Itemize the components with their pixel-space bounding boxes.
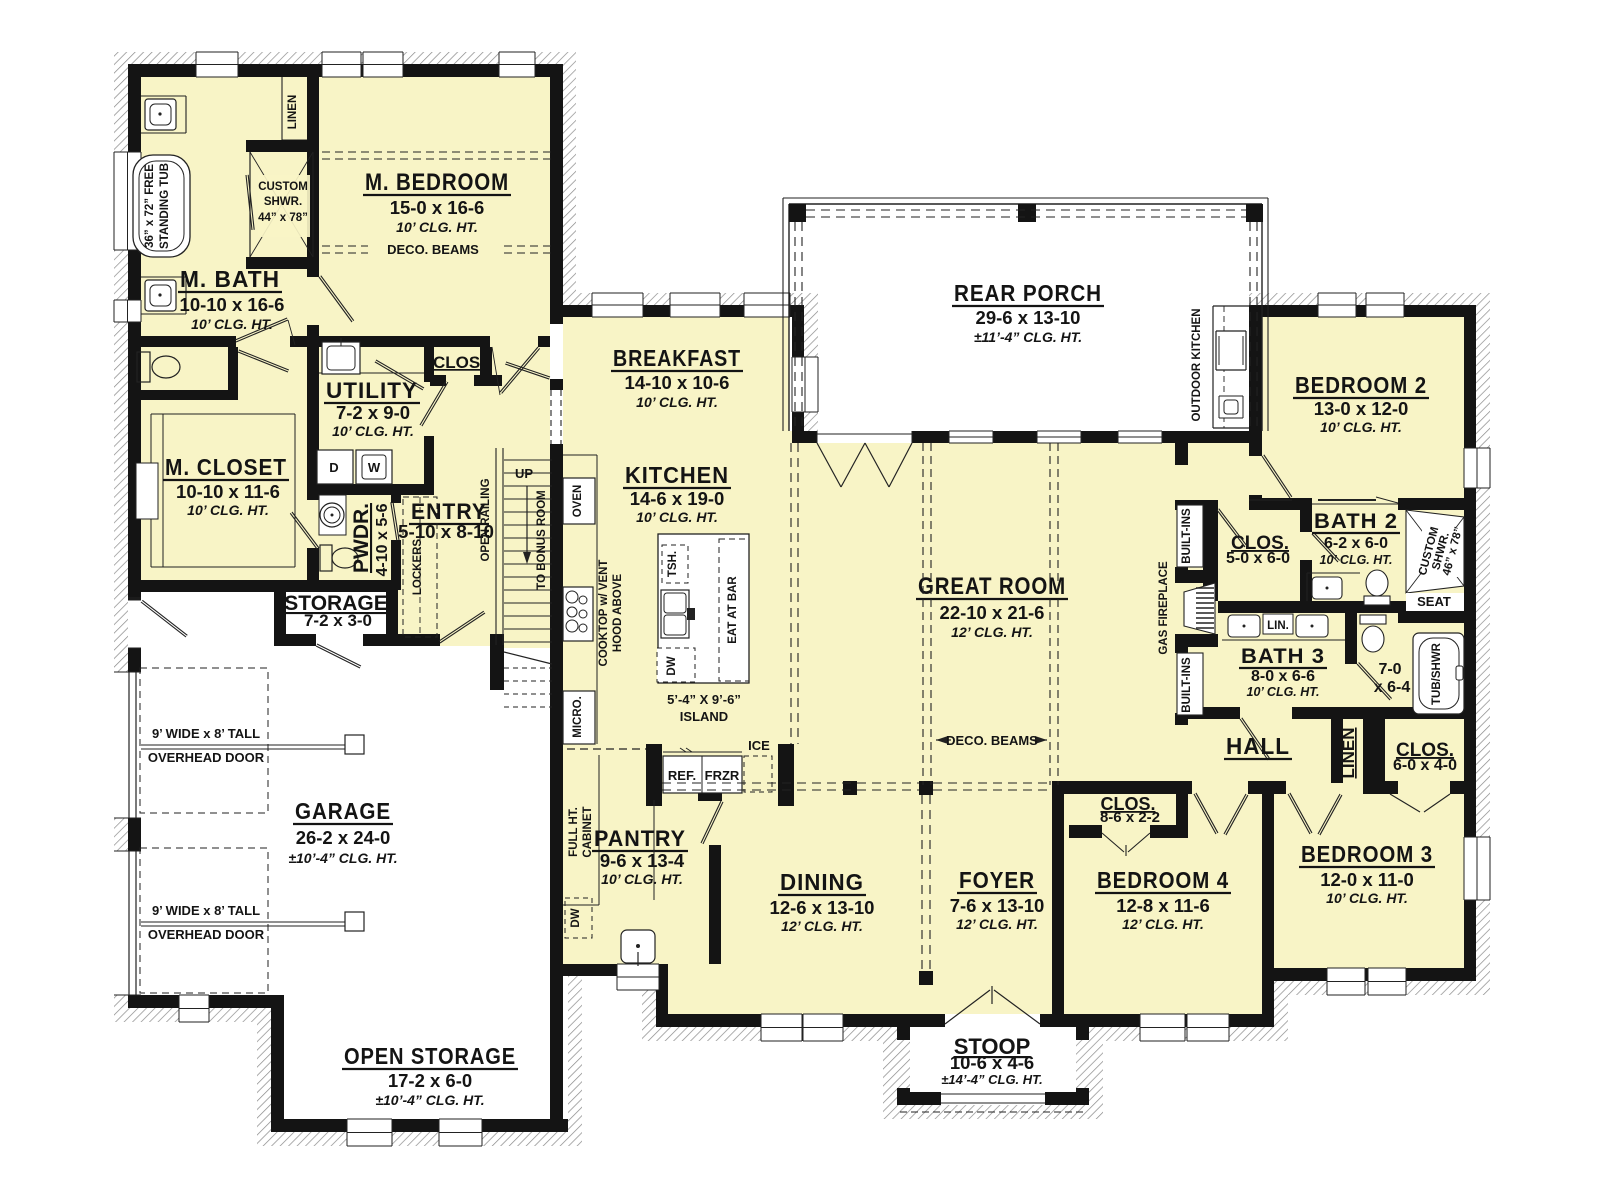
svg-text:LIN.: LIN. — [1267, 620, 1289, 632]
svg-text:MICRO.: MICRO. — [572, 696, 584, 738]
svg-text:6-2 x 6-0: 6-2 x 6-0 — [1324, 535, 1388, 552]
svg-text:CABINET: CABINET — [582, 806, 594, 857]
svg-text:GAS FIREPLACE: GAS FIREPLACE — [1158, 561, 1170, 655]
svg-text:13-0 x 12-0: 13-0 x 12-0 — [1314, 398, 1409, 419]
svg-text:10’ CLG. HT.: 10’ CLG. HT. — [187, 502, 269, 518]
svg-text:9-6 x 13-4: 9-6 x 13-4 — [600, 850, 685, 871]
svg-text:LINEN: LINEN — [287, 95, 299, 130]
svg-text:12-0 x 11-0: 12-0 x 11-0 — [1320, 869, 1414, 890]
svg-text:LINEN: LINEN — [1339, 728, 1358, 779]
svg-text:12-8 x 11-6: 12-8 x 11-6 — [1116, 895, 1210, 916]
svg-text:±11’-4” CLG. HT.: ±11’-4” CLG. HT. — [974, 329, 1082, 345]
svg-text:OVEN: OVEN — [572, 485, 584, 518]
svg-text:10’ CLG. HT.: 10’ CLG. HT. — [1326, 890, 1408, 906]
svg-text:12’ CLG. HT.: 12’ CLG. HT. — [1122, 916, 1204, 932]
svg-text:10-10 x 16-6: 10-10 x 16-6 — [180, 294, 285, 315]
svg-text:14-10 x 10-6: 14-10 x 10-6 — [625, 372, 730, 393]
svg-text:CUSTOM: CUSTOM — [258, 181, 308, 193]
svg-text:44” x 78”: 44” x 78” — [258, 212, 308, 224]
svg-text:KITCHEN: KITCHEN — [625, 462, 729, 488]
svg-text:10’ CLG. HT.: 10’ CLG. HT. — [1320, 419, 1402, 435]
svg-text:±14’-4” CLG. HT.: ±14’-4” CLG. HT. — [941, 1072, 1043, 1087]
svg-text:7-0: 7-0 — [1378, 661, 1401, 678]
svg-text:12-6 x 13-10: 12-6 x 13-10 — [770, 897, 875, 918]
svg-text:M. BEDROOM: M. BEDROOM — [365, 169, 509, 196]
svg-text:9’ WIDE x 8’ TALL: 9’ WIDE x 8’ TALL — [152, 726, 260, 741]
svg-text:±10’-4” CLG. HT.: ±10’-4” CLG. HT. — [375, 1092, 484, 1108]
svg-text:BATH 3: BATH 3 — [1241, 645, 1325, 668]
svg-text:10-10 x 11-6: 10-10 x 11-6 — [176, 481, 280, 502]
svg-text:7-2 x 9-0: 7-2 x 9-0 — [336, 402, 410, 423]
svg-text:10’ CLG. HT.: 10’ CLG. HT. — [601, 871, 683, 887]
svg-text:DECO. BEAMS: DECO. BEAMS — [387, 242, 479, 257]
svg-text:TUB/SHWR: TUB/SHWR — [1431, 642, 1443, 705]
svg-text:9’ WIDE x 8’ TALL: 9’ WIDE x 8’ TALL — [152, 903, 260, 918]
svg-text:7-6 x 13-10: 7-6 x 13-10 — [950, 895, 1045, 916]
svg-text:10’ CLG. HT.: 10’ CLG. HT. — [191, 316, 273, 332]
svg-text:12’ CLG. HT.: 12’ CLG. HT. — [956, 916, 1038, 932]
svg-text:8-6 x 2-2: 8-6 x 2-2 — [1100, 809, 1160, 826]
svg-text:7-2 x 3-0: 7-2 x 3-0 — [304, 611, 372, 630]
svg-text:M. BATH: M. BATH — [180, 266, 280, 292]
svg-text:SHWR.: SHWR. — [264, 196, 302, 208]
svg-text:STANDING TUB: STANDING TUB — [159, 163, 171, 249]
svg-text:DW: DW — [666, 656, 678, 675]
svg-text:M. CLOSET: M. CLOSET — [165, 454, 287, 480]
svg-text:FOYER: FOYER — [959, 867, 1035, 893]
svg-text:TO BONUS ROOM: TO BONUS ROOM — [536, 490, 548, 589]
svg-text:22-10 x 21-6: 22-10 x 21-6 — [940, 602, 1045, 623]
svg-text:10-6 x 4-6: 10-6 x 4-6 — [950, 1052, 1034, 1073]
svg-text:10’ CLG. HT.: 10’ CLG. HT. — [636, 394, 718, 410]
svg-text:BEDROOM 2: BEDROOM 2 — [1295, 372, 1427, 398]
svg-text:15-0 x 16-6: 15-0 x 16-6 — [390, 197, 485, 218]
svg-text:6-0 x 4-0: 6-0 x 4-0 — [1393, 757, 1457, 774]
svg-text:PANTRY: PANTRY — [594, 826, 686, 851]
svg-text:10’ CLG. HT.: 10’ CLG. HT. — [396, 219, 478, 235]
svg-text:12’ CLG. HT.: 12’ CLG. HT. — [781, 918, 863, 934]
svg-text:5-0 x 6-0: 5-0 x 6-0 — [1226, 550, 1290, 567]
svg-text:EAT AT BAR: EAT AT BAR — [727, 576, 739, 644]
svg-text:5’-4” X 9’-6”: 5’-4” X 9’-6” — [667, 692, 741, 707]
svg-text:GREAT ROOM: GREAT ROOM — [918, 573, 1066, 600]
svg-text:FULL HT.: FULL HT. — [568, 807, 580, 857]
svg-text:DECO. BEAMS: DECO. BEAMS — [946, 733, 1038, 748]
svg-text:D: D — [329, 460, 338, 475]
svg-text:DW: DW — [570, 908, 582, 927]
svg-text:36” x 72” FREE: 36” x 72” FREE — [144, 164, 156, 248]
svg-text:OPEN STORAGE: OPEN STORAGE — [344, 1043, 516, 1069]
svg-text:LOCKERS: LOCKERS — [412, 539, 424, 596]
svg-text:SEAT: SEAT — [1417, 594, 1451, 609]
svg-text:COOKTOP w/ VENT: COOKTOP w/ VENT — [598, 560, 610, 667]
svg-text:FRZR: FRZR — [705, 768, 740, 783]
svg-text:BUILT-INS: BUILT-INS — [1181, 508, 1193, 564]
svg-text:10’ CLG. HT.: 10’ CLG. HT. — [1247, 685, 1320, 699]
svg-text:BEDROOM 4: BEDROOM 4 — [1097, 867, 1229, 893]
svg-text:BATH 2: BATH 2 — [1314, 510, 1398, 533]
svg-text:GARAGE: GARAGE — [295, 798, 391, 824]
svg-text:BREAKFAST: BREAKFAST — [613, 345, 741, 371]
svg-text:14-6 x 19-0: 14-6 x 19-0 — [630, 488, 725, 509]
svg-text:OVERHEAD DOOR: OVERHEAD DOOR — [148, 750, 265, 765]
svg-text:10’ CLG. HT.: 10’ CLG. HT. — [636, 509, 718, 525]
svg-text:5-10 x 8-10: 5-10 x 8-10 — [398, 521, 494, 542]
svg-text:REF.: REF. — [668, 768, 696, 783]
svg-text:UTILITY: UTILITY — [326, 378, 418, 403]
svg-text:OVERHEAD DOOR: OVERHEAD DOOR — [148, 927, 265, 942]
svg-text:CLOS.: CLOS. — [433, 353, 485, 372]
svg-text:17-2 x 6-0: 17-2 x 6-0 — [388, 1070, 472, 1091]
svg-text:REAR PORCH: REAR PORCH — [954, 280, 1102, 306]
svg-text:HALL: HALL — [1226, 733, 1290, 759]
svg-text:TSH.: TSH. — [667, 551, 679, 577]
svg-text:10’ CLG. HT.: 10’ CLG. HT. — [1320, 553, 1393, 567]
svg-text:BEDROOM 3: BEDROOM 3 — [1301, 841, 1433, 867]
svg-text:12’ CLG. HT.: 12’ CLG. HT. — [951, 624, 1033, 640]
svg-text:UP: UP — [515, 466, 533, 481]
svg-text:26-2 x 24-0: 26-2 x 24-0 — [296, 827, 391, 848]
svg-text:W: W — [368, 460, 381, 475]
svg-text:OUTDOOR KITCHEN: OUTDOOR KITCHEN — [1191, 308, 1203, 421]
svg-text:PWDR.: PWDR. — [350, 503, 373, 573]
svg-text:±10’-4” CLG. HT.: ±10’-4” CLG. HT. — [288, 850, 397, 866]
svg-text:4-10 x 5-6: 4-10 x 5-6 — [374, 503, 391, 576]
svg-text:HOOD ABOVE: HOOD ABOVE — [612, 574, 624, 652]
svg-text:29-6 x 13-10: 29-6 x 13-10 — [976, 307, 1081, 328]
svg-text:10’ CLG. HT.: 10’ CLG. HT. — [332, 423, 414, 439]
svg-text:DINING: DINING — [780, 869, 864, 895]
svg-text:8-0 x 6-6: 8-0 x 6-6 — [1251, 668, 1315, 685]
svg-text:ICE: ICE — [748, 738, 770, 753]
svg-text:BUILT-INS: BUILT-INS — [1181, 657, 1193, 713]
svg-text:ISLAND: ISLAND — [680, 709, 728, 724]
